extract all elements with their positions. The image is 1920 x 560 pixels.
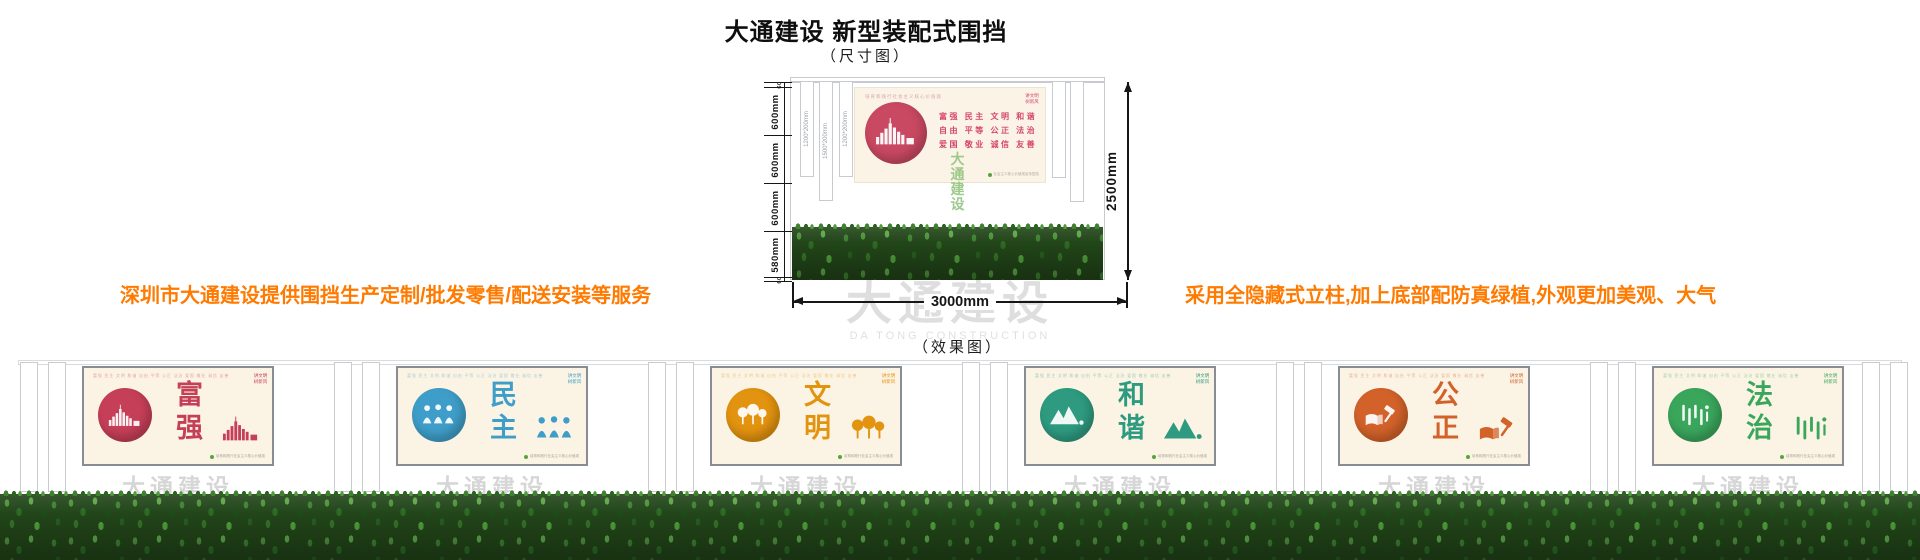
panel-footnote-text: 培育和践行社会主义核心价值观 [844, 454, 893, 459]
value-panel: 富强 民主 文明 和谐 自由 平等 公正 法治 爱国 敬业 诚信 友善 讲文明 … [710, 366, 902, 466]
panel-header-text: 富强 民主 文明 和谐 自由 平等 公正 法治 爱国 敬业 诚信 友善 [1663, 373, 1810, 379]
panel-circle-motif-icon [1678, 403, 1712, 427]
panel-footnote: 培育和践行社会主义核心价值观 [838, 454, 893, 459]
height-segment: 600mm [764, 87, 792, 135]
panel-header-text: 富强 民主 文明 和谐 自由 平等 公正 法治 爱国 敬业 诚信 友善 [721, 373, 868, 379]
fence-post [1276, 362, 1294, 492]
panel-circle-motif-icon [422, 403, 456, 427]
fence-bay: 富强 民主 文明 和谐 自由 平等 公正 法治 爱国 敬业 诚信 友善 讲文明 … [1588, 360, 1902, 498]
hidden-post-right [1052, 82, 1066, 178]
panel-footnote-text: 培育和践行社会主义核心价值观 [1472, 454, 1521, 459]
panel-corner-text: 讲文明 树新风 [1195, 373, 1210, 385]
height-segment: 580mm [764, 231, 792, 277]
panel-circle-graphic [1040, 388, 1094, 442]
page: 大通建设 新型装配式围挡 （尺寸图） 60600mm600mm600mm580m… [0, 0, 1920, 560]
panel-footnote-text: 培育和践行社会主义核心价值观 [216, 454, 265, 459]
panel-circle-motif-icon [736, 403, 770, 427]
fence-post [676, 362, 694, 492]
effect-caption: （效果图） [913, 336, 1003, 357]
mountains-icon [1164, 414, 1202, 442]
panel-header-text: 富强 民主 文明 和谐 自由 平等 公正 法治 爱国 敬业 诚信 友善 [93, 373, 240, 379]
hidden-post: 1200*200mm [839, 82, 853, 177]
panel-circle-graphic [726, 388, 780, 442]
panel-corner-text: 讲文明 树新风 [253, 373, 268, 385]
fence-bay: 富强 民主 文明 和谐 自由 平等 公正 法治 爱国 敬业 诚信 友善 讲文明 … [960, 360, 1274, 498]
green-dot-icon [210, 455, 214, 459]
poster-circle-motif-icon [875, 116, 917, 150]
fence-post [20, 362, 38, 492]
fence-post [334, 362, 352, 492]
panel-circle-graphic [1668, 388, 1722, 442]
panel-circle-motif-icon [1050, 403, 1084, 427]
panel-header-text: 富强 民主 文明 和谐 自由 平等 公正 法治 爱国 敬业 诚信 友善 [1035, 373, 1182, 379]
panel-footnote: 培育和践行社会主义核心价值观 [1152, 454, 1207, 459]
script-icon [1792, 414, 1830, 442]
hidden-post: 1200*200mm [800, 82, 814, 177]
green-dot-icon [1152, 455, 1156, 459]
panel-circle-graphic [1354, 388, 1408, 442]
panel-corner-text: 讲文明 树新风 [881, 373, 896, 385]
fence-bay: 富强 民主 文明 和谐 自由 平等 公正 法治 爱国 敬业 诚信 友善 讲文明 … [1274, 360, 1588, 498]
fence-post [1862, 362, 1880, 492]
panel-word: 公正 [1428, 380, 1458, 460]
total-width-ruler: 3000mm [793, 301, 1127, 303]
panel-corner-text: 讲文明 树新风 [1823, 373, 1838, 385]
book-gavel-icon [1478, 414, 1516, 442]
left-height-ruler: 60600mm600mm600mm580mm60 [764, 82, 792, 282]
green-watermark-line: 建设 [946, 182, 970, 212]
panel-header-text: 富强 民主 文明 和谐 自由 平等 公正 法治 爱国 敬业 诚信 友善 [1349, 373, 1496, 379]
fence-post [648, 362, 666, 492]
poster-corner-text: 讲文明 树新风 [1024, 93, 1040, 105]
fence-post [962, 362, 980, 492]
fence-post [1590, 362, 1608, 492]
panel-corner-text: 讲文明 树新风 [1509, 373, 1524, 385]
green-dot-icon [1780, 455, 1784, 459]
total-height-ruler: 2500mm [1127, 82, 1129, 280]
panel-corner-text: 讲文明 树新风 [567, 373, 582, 385]
effect-hedge [0, 494, 1920, 560]
panel-footnote-text: 培育和践行社会主义核心价值观 [1158, 454, 1207, 459]
fence-bay: 富强 民主 文明 和谐 自由 平等 公正 法治 爱国 敬业 诚信 友善 讲文明 … [18, 360, 332, 498]
value-panel: 富强 民主 文明 和谐 自由 平等 公正 法治 爱国 敬业 诚信 友善 讲文明 … [1024, 366, 1216, 466]
height-segment: 600mm [764, 183, 792, 231]
total-width-label: 3000mm [924, 294, 996, 310]
effect-view: 富强 民主 文明 和谐 自由 平等 公正 法治 爱国 敬业 诚信 友善 讲文明 … [18, 360, 1902, 498]
people-icon [536, 414, 574, 442]
green-brand-watermark: 大通 建设 [946, 152, 970, 212]
panel-word: 和谐 [1114, 380, 1144, 460]
fence-post [48, 362, 66, 492]
fence-bay: 富强 民主 文明 和谐 自由 平等 公正 法治 爱国 敬业 诚信 友善 讲文明 … [646, 360, 960, 498]
diagram-brand-watermark: 大通建设 DA TONG CONSTRUCTION [846, 278, 1054, 342]
right-note: 采用全隐藏式立柱,加上底部配防真绿植,外观更加美观、大气 [1185, 279, 1716, 308]
dimension-diagram: 60600mm600mm600mm580mm60 1200*200mm1500*… [750, 60, 1170, 360]
diagram-hedge [792, 227, 1103, 280]
value-panel: 富强 民主 文明 和谐 自由 平等 公正 法治 爱国 敬业 诚信 友善 讲文明 … [82, 366, 274, 466]
hidden-post: 1500*200mm [819, 82, 833, 201]
left-note: 深圳市大通建设提供围挡生产定制/批发零售/配送安装等服务 [120, 279, 651, 308]
panel-footnote: 培育和践行社会主义核心价值观 [1466, 454, 1521, 459]
fence-post [990, 362, 1008, 492]
trees-icon [850, 414, 888, 442]
total-height-label: 2500mm [1104, 151, 1119, 211]
green-dot-icon [838, 455, 842, 459]
fence-post [1304, 362, 1322, 492]
fence-post [362, 362, 380, 492]
green-dot-icon [524, 455, 528, 459]
panel-header-text: 富强 民主 文明 和谐 自由 平等 公正 法治 爱国 敬业 诚信 友善 [407, 373, 554, 379]
value-panel: 富强 民主 文明 和谐 自由 平等 公正 法治 爱国 敬业 诚信 友善 讲文明 … [1338, 366, 1530, 466]
panel-footnote: 培育和践行社会主义核心价值观 [1780, 454, 1835, 459]
panel-word: 民主 [486, 380, 516, 460]
value-panel: 富强 民主 文明 和谐 自由 平等 公正 法治 爱国 敬业 诚信 友善 讲文明 … [1652, 366, 1844, 466]
panel-word: 法治 [1742, 380, 1772, 460]
height-segment: 600mm [764, 135, 792, 183]
green-dot-icon [1466, 455, 1470, 459]
height-segment: 60 [764, 277, 792, 282]
poster-footnote: 社会主义核心价值观宣传围挡 [988, 172, 1040, 177]
page-title: 大通建设 新型装配式围挡 [725, 12, 1008, 47]
poster-header-text: 培育和践行社会主义核心价值观 [865, 94, 1019, 100]
poster-circle-graphic [865, 102, 927, 164]
panel-word: 文明 [800, 380, 830, 460]
panel-circle-graphic [412, 388, 466, 442]
poster-value-row: 爱国 敬业 诚信 友善 [939, 138, 1037, 152]
poster-value-row: 自由 平等 公正 法治 [939, 124, 1037, 138]
value-panel: 富强 民主 文明 和谐 自由 平等 公正 法治 爱国 敬业 诚信 友善 讲文明 … [396, 366, 588, 466]
fence-bay: 富强 民主 文明 和谐 自由 平等 公正 法治 爱国 敬业 诚信 友善 讲文明 … [332, 360, 646, 498]
panel-footnote: 培育和践行社会主义核心价值观 [210, 454, 265, 459]
panel-circle-graphic [98, 388, 152, 442]
poster-value-rows: 富强 民主 文明 和谐自由 平等 公正 法治爱国 敬业 诚信 友善 [939, 110, 1037, 152]
poster-footnote-text: 社会主义核心价值观宣传围挡 [994, 172, 1040, 177]
panel-word: 富强 [172, 380, 202, 460]
green-dot-icon [988, 173, 992, 177]
panel-footnote: 培育和践行社会主义核心价值观 [524, 454, 579, 459]
city-bars-icon [222, 414, 260, 442]
panel-footnote-text: 培育和践行社会主义核心价值观 [530, 454, 579, 459]
fence-post [1890, 362, 1908, 492]
panel-circle-motif-icon [108, 403, 142, 427]
hidden-post-right [1070, 82, 1084, 202]
panel-circle-motif-icon [1364, 403, 1398, 427]
fence-post [1618, 362, 1636, 492]
green-watermark-line: 大通 [946, 152, 970, 182]
poster-value-row: 富强 民主 文明 和谐 [939, 110, 1037, 124]
panel-footnote-text: 培育和践行社会主义核心价值观 [1786, 454, 1835, 459]
